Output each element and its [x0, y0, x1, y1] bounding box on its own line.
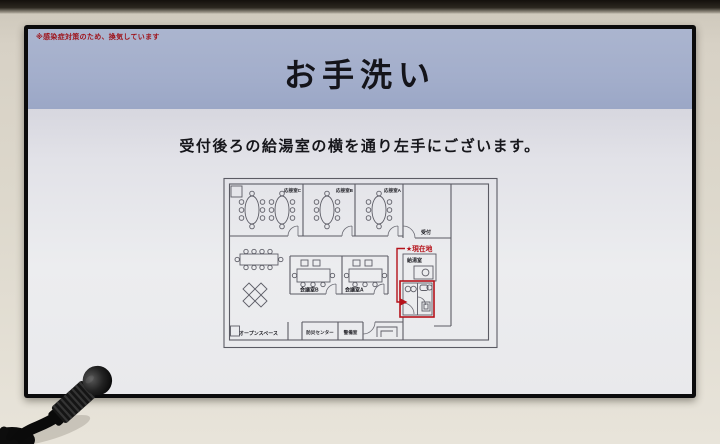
mic-gooseneck	[12, 416, 58, 444]
header-band: ※感染症対策のため、換気しています お手洗い	[28, 29, 692, 109]
room-label-disaster-center: 防災センター	[306, 329, 334, 336]
toilet-block	[400, 281, 434, 317]
current-location-label: ★現在地	[406, 244, 433, 253]
open-space-furniture	[235, 249, 283, 307]
room-label-security: 警備室	[343, 329, 357, 336]
kiosk-photo: ※感染症対策のため、換気しています お手洗い 受付後ろの給湯室の横を通り左手にご…	[0, 0, 720, 444]
room-label-kitchenette: 給湯室	[407, 257, 422, 264]
instruction-text: 受付後ろの給湯室の横を通り左手にございます。	[28, 109, 692, 156]
monitor-frame: ※感染症対策のため、換気しています お手洗い 受付後ろの給湯室の横を通り左手にご…	[24, 25, 696, 398]
background-shadow	[0, 0, 720, 14]
room-label-meeting-b: 会議室B	[299, 287, 319, 294]
mic-cable	[2, 431, 14, 444]
reception-tables	[239, 191, 392, 229]
notice-text: ※感染症対策のため、換気しています	[36, 32, 160, 42]
room-label-reception-b: 応接室B	[335, 187, 353, 194]
meeting-room-furniture	[292, 260, 386, 287]
room-label-reception-a: 応接室A	[383, 187, 401, 194]
touch-screen: ※感染症対策のため、換気しています お手洗い 受付後ろの給湯室の横を通り左手にご…	[28, 29, 692, 394]
mic-shadow	[11, 409, 93, 444]
mic-base	[0, 427, 35, 444]
route-path	[397, 249, 408, 306]
kitchenette-fixture	[414, 266, 433, 279]
room-label-open-space: オープンスペース	[239, 330, 278, 337]
room-label-reception-c: 応接室C	[283, 187, 301, 194]
room-label-meeting-a: 会議室A	[344, 287, 364, 294]
floor-map: 応接室C 応接室B 応接室A 受付 給湯室 会議室B 会議室A オープンスペース…	[222, 176, 499, 350]
guard-desk	[377, 327, 397, 337]
destination-highlight	[400, 281, 434, 317]
floor-plan-svg: 応接室C 応接室B 応接室A 受付 給湯室 会議室B 会議室A オープンスペース…	[222, 176, 499, 350]
room-label-front-desk: 受付	[421, 229, 431, 236]
map-doors	[288, 226, 415, 334]
content-area: 受付後ろの給湯室の横を通り左手にございます。	[28, 109, 692, 394]
toilet-fixtures	[405, 285, 432, 311]
map-labels: 応接室C 応接室B 応接室A 受付 給湯室 会議室B 会議室A オープンスペース…	[239, 187, 433, 337]
chairs	[239, 191, 392, 229]
